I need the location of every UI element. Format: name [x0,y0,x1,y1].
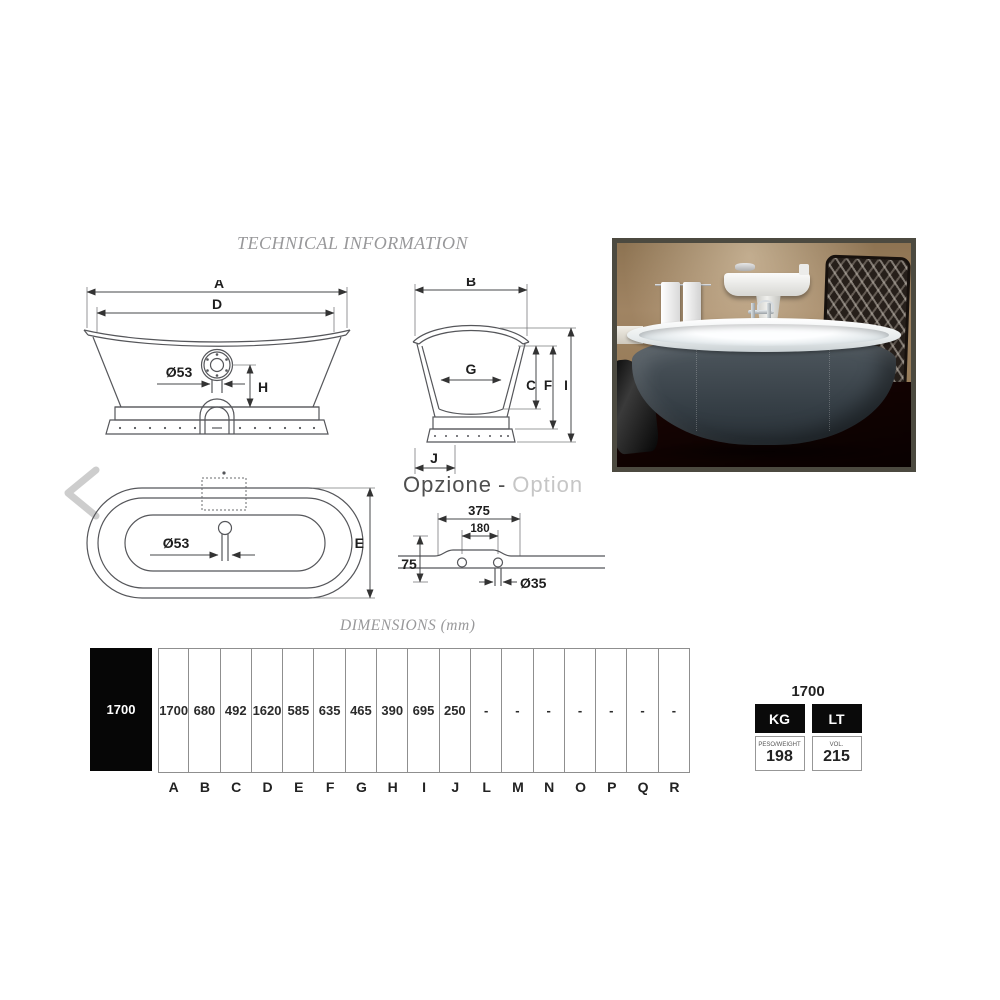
dimension-value: 492 [220,648,252,773]
dimension-value: 635 [313,648,345,773]
dimension-value: - [564,648,596,773]
dim-label-75: 75 [401,556,417,572]
dimension-letter: A [158,779,189,795]
bathtub-rivet-line [696,346,697,431]
dim-label-drain-side: Ø53 [166,364,193,380]
side-view-drawing: A D Ø53 [82,280,382,448]
dimension-column: - P [596,648,627,795]
dimension-value: 250 [439,648,471,773]
dimension-value: - [595,648,627,773]
dimension-column: - N [534,648,565,795]
dimension-value: - [658,648,690,773]
dimension-letter: P [596,779,627,795]
dimension-column: 1620 D [252,648,283,795]
dim-label-a: A [214,280,224,291]
dim-label-f: F [544,378,552,393]
dimension-letter: D [252,779,283,795]
model-value: 1700 [107,702,136,717]
option-drawing: 375 180 75 Ø35 [395,506,610,604]
dimension-value: - [501,648,533,773]
dimension-column: 585 E [283,648,314,795]
dim-label-hole: Ø35 [520,575,547,591]
dimension-letter: N [534,779,565,795]
dimension-column: 390 H [377,648,408,795]
sink-cup [799,264,808,275]
dim-label-drain-top: Ø53 [163,535,190,551]
top-view-drawing: Ø53 E [80,468,380,616]
dimension-value: 1620 [251,648,283,773]
sink-basin [724,273,809,295]
option-title-separator: - [498,472,506,497]
dimension-column: 492 C [221,648,252,795]
front-view-drawing: B G C F I J [405,278,590,478]
spec-unit-kg: KG [755,704,805,733]
bath-faucet-spout [757,300,774,312]
dimension-column: 680 B [189,648,220,795]
dimension-value: 680 [188,648,220,773]
dimension-letter: L [471,779,502,795]
dimension-value: 695 [407,648,439,773]
dimension-column: - Q [627,648,658,795]
dimension-column: 635 F [314,648,345,795]
dim-label-180: 180 [470,523,489,535]
dimension-column: 465 G [346,648,377,795]
dimension-value: 390 [376,648,408,773]
product-photo[interactable] [612,238,916,472]
option-title-italian: Opzione [403,472,492,497]
dimension-value: - [626,648,658,773]
dimension-value: 465 [345,648,377,773]
option-title-english: Option [512,472,583,497]
dimension-letter: C [221,779,252,795]
dim-label-j: J [430,450,438,466]
dim-label-e: E [355,535,364,551]
dimension-letter: B [189,779,220,795]
option-title: Opzione-Option [403,472,583,498]
dimension-letter: M [502,779,533,795]
spec-table: 1700 KG LT PESO/WEIGHT 198 VOL. 215 [754,683,862,771]
dim-label-d: D [212,296,222,312]
dimension-letter: O [565,779,596,795]
dim-label-h: H [258,379,268,395]
bathtub-interior [639,324,889,346]
dim-label-g: G [466,361,477,377]
dim-label-i: I [564,378,568,393]
dimension-letter: H [377,779,408,795]
dimension-value: 1700 [158,648,189,773]
sink-shelf [735,263,756,271]
dim-label-b: B [466,278,476,289]
spec-volume-value: 215 [823,748,850,766]
dimension-column: 250 J [440,648,471,795]
dim-label-375: 375 [468,506,490,518]
spec-weight-cell: PESO/WEIGHT 198 [755,736,805,771]
dimension-letter: I [408,779,439,795]
dimension-letter: J [440,779,471,795]
dimension-column: 1700 A [158,648,189,795]
dimension-column: 695 I [408,648,439,795]
dimension-column: - L [471,648,502,795]
model-cell: 1700 [90,648,152,771]
bathtub-rivet-line [829,346,830,431]
spec-unit-lt: LT [812,704,862,733]
dimension-value: - [533,648,565,773]
page: TECHNICAL INFORMATION A D [0,0,1000,1000]
spec-model: 1700 [754,683,862,700]
dim-label-c: C [526,378,536,393]
spec-volume-cell: VOL. 215 [812,736,862,771]
dimension-letter: E [283,779,314,795]
dimension-letter: F [314,779,345,795]
dimension-column: - O [565,648,596,795]
dimensions-caption: DIMENSIONS (mm) [340,617,475,635]
dimension-column: - R [659,648,690,795]
spec-weight-value: 198 [766,748,793,766]
dimension-letter: Q [627,779,658,795]
dimension-value: - [470,648,502,773]
page-title: TECHNICAL INFORMATION [237,233,468,254]
dimensions-columns: 1700 A 680 B 492 C 1620 D 585 E 635 F 46… [158,648,690,795]
dimension-letter: G [346,779,377,795]
dimension-value: 585 [282,648,314,773]
dimension-letter: R [659,779,690,795]
dimension-column: - M [502,648,533,795]
